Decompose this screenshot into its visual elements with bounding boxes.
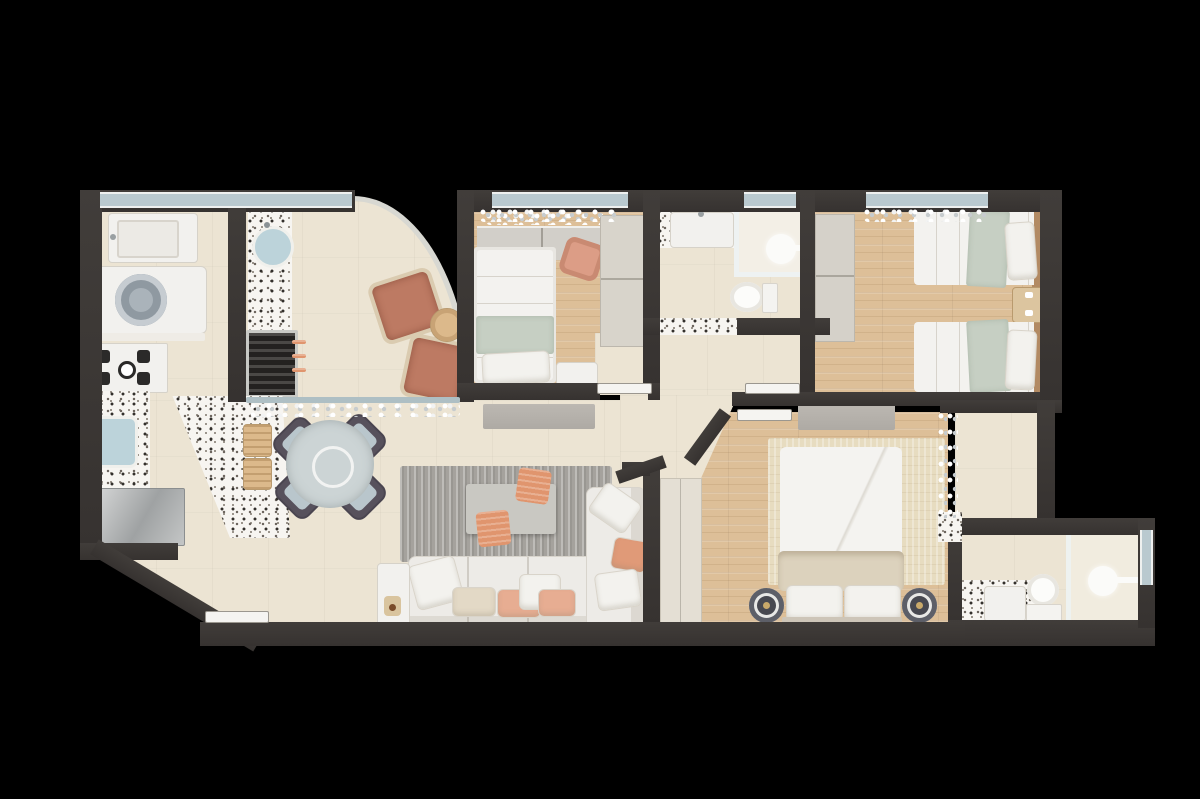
- shower-glass: [1066, 535, 1071, 623]
- counter-stool-1: [243, 424, 272, 457]
- bedroom-1-wardrobe: [600, 215, 645, 347]
- bbq-grill: [246, 330, 298, 398]
- master-pillow-left: [786, 585, 843, 621]
- washing-machine: [92, 266, 207, 334]
- bedroom-1-door-leaf: [597, 383, 652, 394]
- master-toilet-bowl: [1027, 574, 1059, 606]
- master-wardrobe: [660, 478, 702, 630]
- wall-bathroom1-right: [800, 190, 815, 397]
- master-bath-sink: [984, 586, 1026, 622]
- twin-bed-a-pillow: [1004, 221, 1038, 281]
- burner-icon: [118, 361, 136, 379]
- shower-head-icon: [766, 234, 796, 264]
- bedroom-1-pillow: [481, 350, 551, 386]
- pouf-2: [475, 509, 511, 547]
- toilet-bowl: [730, 282, 764, 312]
- sofa-pillow: [452, 587, 496, 617]
- master-pillow-right: [844, 585, 901, 621]
- bedroom-1-throw: [476, 316, 554, 354]
- washer-door-icon: [115, 274, 167, 326]
- balcony-armchair-2: [398, 332, 465, 402]
- pouf-1: [515, 467, 552, 505]
- faucet-icon: [110, 234, 116, 240]
- terrace-curtain: [938, 413, 958, 518]
- balcony-curved-room: [246, 196, 465, 402]
- twin-bed-b-pillow: [1004, 329, 1037, 390]
- wall-bedroom1-bottom: [457, 383, 600, 400]
- bedroom-2-window: [866, 192, 988, 208]
- skewer-handle: [292, 354, 306, 358]
- kitchen-shelf: [95, 333, 205, 341]
- shower-arm: [1114, 577, 1138, 583]
- bedroom-1-window: [492, 192, 628, 208]
- sofa-pillow: [538, 589, 576, 617]
- bathroom-1-sink: [670, 212, 734, 248]
- wall-masterbath-bottom: [948, 620, 1155, 646]
- round-nightstand-left: [749, 588, 784, 623]
- master-bathroom-window: [1140, 530, 1153, 585]
- tv-sideboard: [483, 404, 595, 429]
- master-dresser: [798, 404, 895, 430]
- wall-bedroom2-right: [1040, 190, 1062, 413]
- burner-icon: [137, 372, 150, 385]
- shower-glass: [734, 210, 739, 276]
- wall-left: [80, 190, 102, 556]
- toilet-tank: [762, 283, 778, 313]
- wall-bedroom1-right: [643, 190, 660, 392]
- sofa-pillow: [594, 568, 643, 612]
- bathroom-1-window: [744, 192, 796, 208]
- kitchen-balcony-window: [100, 192, 352, 208]
- wall-kitchen-balcony: [228, 190, 246, 402]
- wall-masterbath-top: [948, 518, 1155, 535]
- wall-terrace-right: [1037, 400, 1055, 520]
- burner-icon: [137, 350, 150, 363]
- faucet-icon: [264, 222, 270, 228]
- dining-table: [286, 420, 374, 508]
- refrigerator: [92, 488, 185, 546]
- terrace-floor: [955, 412, 1037, 518]
- wall-bathroom1-bottom-left: [643, 318, 660, 335]
- round-nightstand-right: [902, 588, 937, 623]
- bedroom-2-door-leaf: [745, 383, 800, 394]
- entry-door-leaf: [205, 611, 269, 623]
- floor-plan-canvas: [0, 0, 1200, 799]
- bathroom-1-threshold: [660, 318, 737, 335]
- wall-balcony-bedroom1: [457, 190, 474, 402]
- master-door-leaf: [737, 409, 792, 421]
- kitchen-sink: [108, 213, 198, 263]
- bedroom-2-curtain: [864, 209, 988, 222]
- counter-stool-2: [243, 458, 272, 490]
- wall-living-master: [643, 462, 660, 628]
- skewer-handle: [292, 340, 306, 344]
- balcony-curtain: [250, 403, 460, 417]
- wall-bathroom1-bottom-right: [737, 318, 830, 335]
- balcony-round-sink: [252, 226, 294, 268]
- bedroom-1-curtain: [480, 209, 620, 222]
- wall-bottom-main: [200, 622, 965, 646]
- console-table: [377, 563, 410, 627]
- skewer-handle: [292, 368, 306, 372]
- plant-icon: [389, 604, 396, 611]
